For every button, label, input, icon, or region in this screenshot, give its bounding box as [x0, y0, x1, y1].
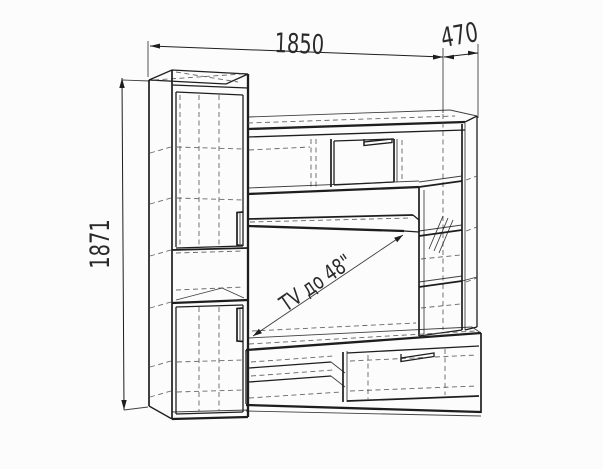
bridge-bottom-edge	[248, 187, 419, 194]
width-value: 1850	[274, 27, 325, 61]
right-shelf-column	[419, 114, 477, 336]
wall-unit-technical-drawing: TV до 48"	[0, 0, 603, 469]
tv-niche: TV до 48"	[252, 235, 416, 336]
tv-size-label: TV до 48"	[274, 249, 357, 317]
stand-bottom-edge	[246, 405, 481, 412]
furniture-dimension-drawing: TV до 48"	[0, 0, 603, 469]
bridge-top-edge	[248, 122, 465, 129]
arrowhead	[150, 44, 160, 49]
arrowhead	[121, 400, 126, 410]
stand-open-shelves	[249, 356, 345, 398]
left-cabinet-lower-door	[176, 305, 243, 414]
depth-value: 470	[438, 16, 480, 54]
arrowhead	[253, 329, 262, 336]
arrowhead	[433, 55, 443, 60]
height-value: 1871	[84, 219, 116, 268]
arrowhead	[394, 235, 403, 242]
drawer-handle	[401, 353, 434, 362]
dimension-width: 1850	[148, 27, 443, 77]
bridge-flap-door	[334, 139, 394, 185]
tv-shelf	[248, 215, 419, 232]
left-cabinet-open-niche	[172, 248, 248, 303]
arrowhead	[468, 51, 478, 56]
left-cabinet	[149, 70, 248, 419]
tv-stand	[246, 327, 481, 416]
dimension-height: 1871	[84, 78, 150, 410]
arrowhead	[444, 55, 454, 60]
arrowhead	[119, 78, 124, 88]
niche-shelf	[172, 300, 248, 303]
left-cabinet-upper-door	[176, 92, 243, 248]
stand-drawer	[347, 346, 479, 401]
dimension-depth: 470	[438, 16, 480, 118]
